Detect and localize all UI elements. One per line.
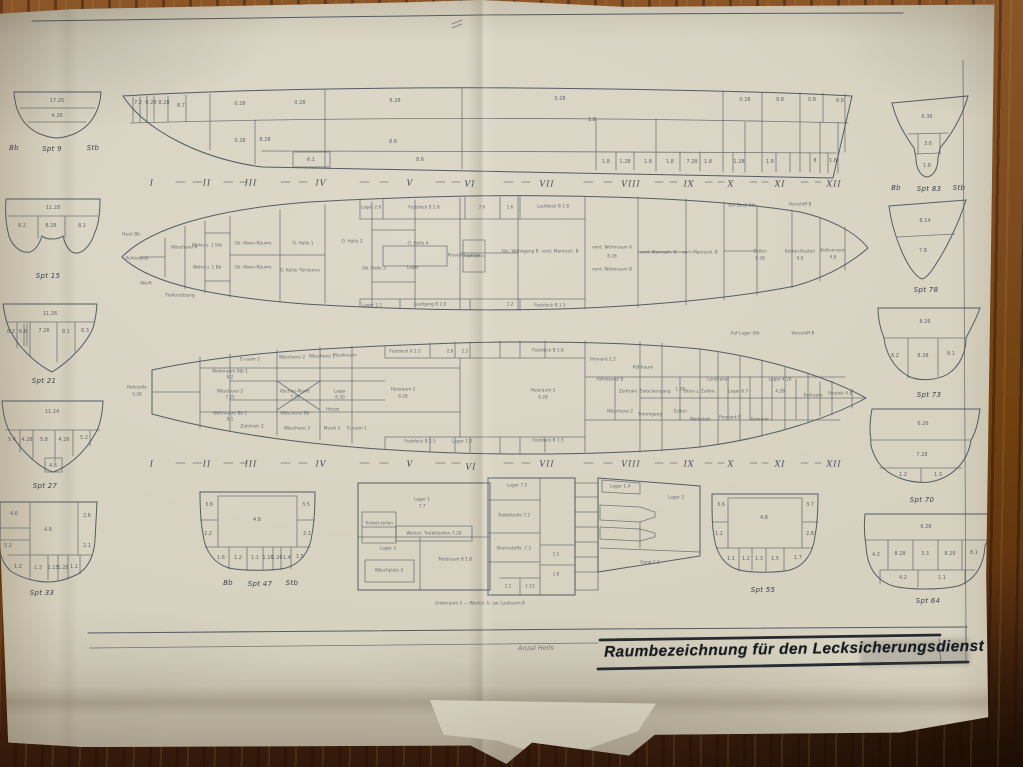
title-annotation: Anzal Heils bbox=[518, 644, 554, 653]
figure-section-spt33 bbox=[0, 502, 97, 582]
figure-section-spt47 bbox=[200, 492, 315, 570]
figure-detail-plan bbox=[358, 478, 700, 595]
border-frame-lines bbox=[32, 13, 966, 640]
figure-upper-deck-plan bbox=[122, 196, 868, 310]
figure-section-spt15 bbox=[6, 199, 100, 253]
figure-section-spt55 bbox=[712, 494, 818, 572]
figure-section-spt64 bbox=[864, 514, 990, 589]
figure-section-spt27 bbox=[2, 401, 103, 472]
photo-of-ship-blueprint: IIIIIIIVVVIVIIVIIIIXXXIXIIIIIIIIIVVVIVII… bbox=[0, 0, 1023, 767]
figure-section-spt78 bbox=[889, 200, 966, 279]
figure-profile-elevation bbox=[123, 88, 852, 182]
figure-lower-deck-plan bbox=[152, 341, 866, 463]
figure-section-spt70 bbox=[870, 409, 980, 482]
figure-section-spt21 bbox=[3, 304, 97, 372]
figure-section-spt83 bbox=[892, 96, 968, 177]
blueprint-paper: IIIIIIIVVVIVIIVIIIIXXXIXIIIIIIIIIVVVIVII… bbox=[0, 0, 1023, 767]
figure-section-spt9 bbox=[14, 92, 101, 138]
